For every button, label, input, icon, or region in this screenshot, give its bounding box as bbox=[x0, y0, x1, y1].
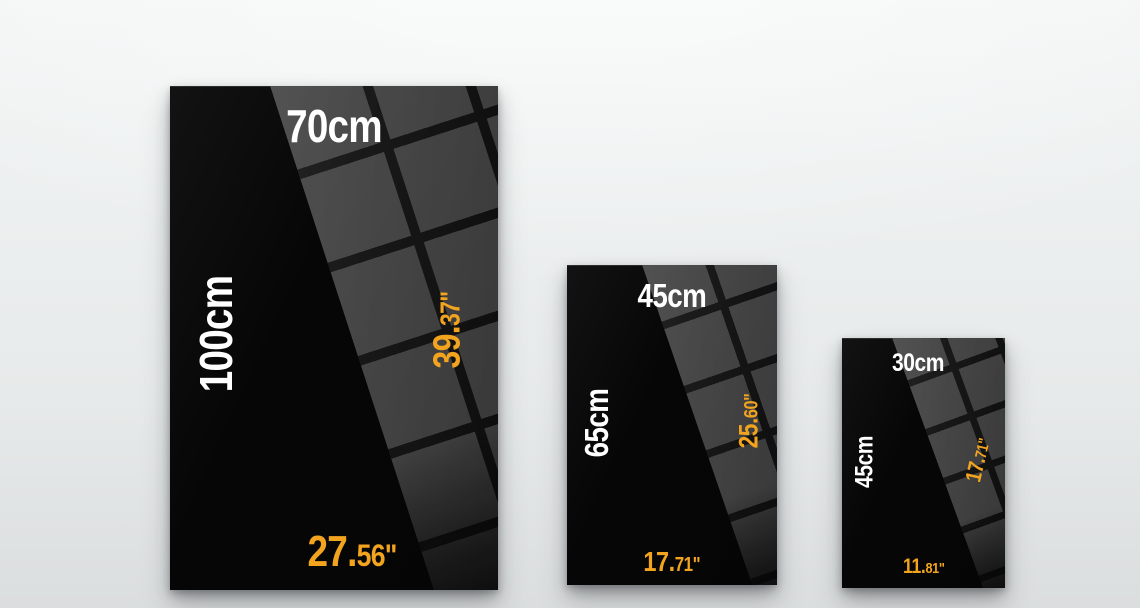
height-inches-major: 25. bbox=[734, 418, 764, 448]
width-inches-label: 17.71" bbox=[567, 546, 777, 578]
height-inches-label: 25.60" bbox=[734, 394, 765, 449]
height-inches-major: 39. bbox=[427, 326, 469, 368]
width-inches-minor: 56" bbox=[357, 537, 397, 573]
width-inches-major: 11. bbox=[903, 555, 925, 578]
width-inches-minor: 71" bbox=[675, 554, 700, 576]
height-cm-label: 65cm bbox=[578, 389, 616, 458]
width-cm-label: 70cm bbox=[170, 99, 498, 153]
height-cm-value: 65cm bbox=[578, 389, 615, 458]
poster-small-45x30cm: 30cm 45cm 17.71" 11.81" bbox=[842, 338, 1005, 588]
width-inches-label: 11.81" bbox=[842, 555, 1005, 579]
width-inches-major: 27. bbox=[307, 527, 356, 576]
wall-background: 70cm 100cm 39.37" 27.56" 45cm 65cm 25.60… bbox=[0, 0, 1140, 608]
width-inches-value: 11.81" bbox=[903, 555, 945, 579]
height-cm-label: 45cm bbox=[851, 436, 880, 488]
width-cm-value: 45cm bbox=[638, 277, 707, 315]
width-inches-minor: 81" bbox=[925, 560, 944, 577]
width-cm-label: 30cm bbox=[842, 349, 993, 378]
height-cm-label: 100cm bbox=[189, 276, 243, 392]
width-inches-value: 17.71" bbox=[644, 546, 701, 578]
width-cm-value: 30cm bbox=[891, 349, 943, 378]
height-cm-value: 45cm bbox=[851, 436, 879, 488]
height-inches-minor: 60" bbox=[741, 394, 763, 419]
height-inches-label: 39.37" bbox=[427, 291, 470, 368]
height-inches-minor: 71" bbox=[973, 437, 994, 460]
width-cm-label: 45cm bbox=[567, 277, 777, 315]
height-inches-minor: 37" bbox=[435, 291, 466, 326]
width-inches-label: 27.56" bbox=[206, 527, 498, 577]
height-cm-value: 100cm bbox=[190, 276, 242, 392]
poster-medium-65x45cm: 45cm 65cm 25.60" 17.71" bbox=[567, 265, 777, 585]
poster-large-100x70cm: 70cm 100cm 39.37" 27.56" bbox=[170, 86, 498, 590]
width-inches-value: 27.56" bbox=[307, 527, 396, 577]
width-inches-major: 17. bbox=[644, 546, 675, 577]
width-cm-value: 70cm bbox=[286, 99, 382, 153]
